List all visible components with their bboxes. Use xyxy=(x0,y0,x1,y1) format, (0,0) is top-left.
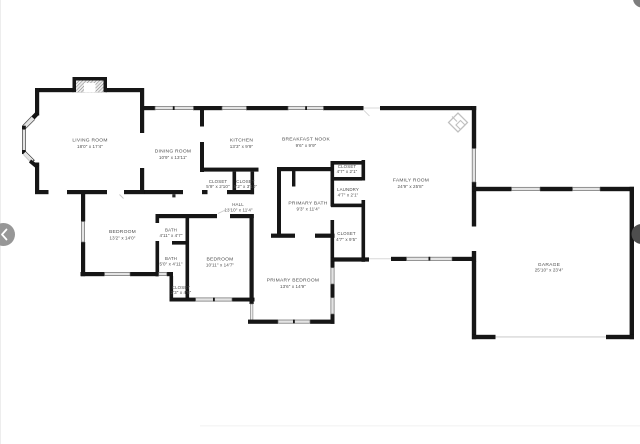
svg-text:KITCHEN: KITCHEN xyxy=(230,138,253,144)
svg-text:24'9" x 25'8": 24'9" x 25'8" xyxy=(398,184,424,189)
svg-text:10'11" x 14'7": 10'11" x 14'7" xyxy=(206,263,235,268)
svg-text:5'2" x 3'10": 5'2" x 3'10" xyxy=(234,184,258,189)
svg-text:BATH: BATH xyxy=(165,228,177,233)
svg-text:4'7" x 2'1": 4'7" x 2'1" xyxy=(337,169,358,174)
svg-text:13'3" x 9'9": 13'3" x 9'9" xyxy=(230,144,254,149)
svg-text:DINING ROOM: DINING ROOM xyxy=(155,149,191,155)
svg-text:25'10" x 23'4": 25'10" x 23'4" xyxy=(535,268,564,273)
svg-text:5'9" x 2'10": 5'9" x 2'10" xyxy=(206,184,230,189)
svg-text:4'11" x 4'7": 4'11" x 4'7" xyxy=(159,233,182,238)
svg-text:9'6" x 9'9": 9'6" x 9'9" xyxy=(296,143,317,148)
svg-text:LAUNDRY: LAUNDRY xyxy=(337,187,359,192)
svg-text:PRIMARY BEDROOM: PRIMARY BEDROOM xyxy=(267,277,319,283)
svg-text:9'3" x 11'4": 9'3" x 11'4" xyxy=(296,207,319,212)
svg-text:2'3" x 4'5": 2'3" x 4'5" xyxy=(171,290,192,295)
svg-text:13'6" x 14'9": 13'6" x 14'9" xyxy=(280,284,306,289)
svg-text:5'0" x 4'11": 5'0" x 4'11" xyxy=(159,262,182,267)
svg-text:CLOSET: CLOSET xyxy=(337,231,356,236)
svg-text:4'7" x 2'1": 4'7" x 2'1" xyxy=(338,193,359,198)
svg-text:BREAKFAST NOOK: BREAKFAST NOOK xyxy=(282,137,330,143)
svg-text:13'10" x 11'4": 13'10" x 11'4" xyxy=(224,207,253,212)
svg-text:FAMILY ROOM: FAMILY ROOM xyxy=(393,178,429,184)
svg-text:HALL: HALL xyxy=(232,202,244,207)
svg-text:18'0" x 17'4": 18'0" x 17'4" xyxy=(77,144,103,149)
svg-text:BEDROOM: BEDROOM xyxy=(206,256,233,262)
svg-text:BATH: BATH xyxy=(165,256,177,261)
svg-text:CLOSET: CLOSET xyxy=(338,164,357,169)
svg-text:13'2" x 14'0": 13'2" x 14'0" xyxy=(110,235,136,240)
svg-text:PRIMARY BATH: PRIMARY BATH xyxy=(288,200,327,206)
svg-text:BEDROOM: BEDROOM xyxy=(109,229,136,235)
svg-text:4'7" x 9'5": 4'7" x 9'5" xyxy=(336,237,357,242)
svg-text:10'9" x 13'11": 10'9" x 13'11" xyxy=(159,155,188,160)
svg-text:LIVING ROOM: LIVING ROOM xyxy=(72,138,107,144)
svg-text:CLOSET: CLOSET xyxy=(172,285,191,290)
